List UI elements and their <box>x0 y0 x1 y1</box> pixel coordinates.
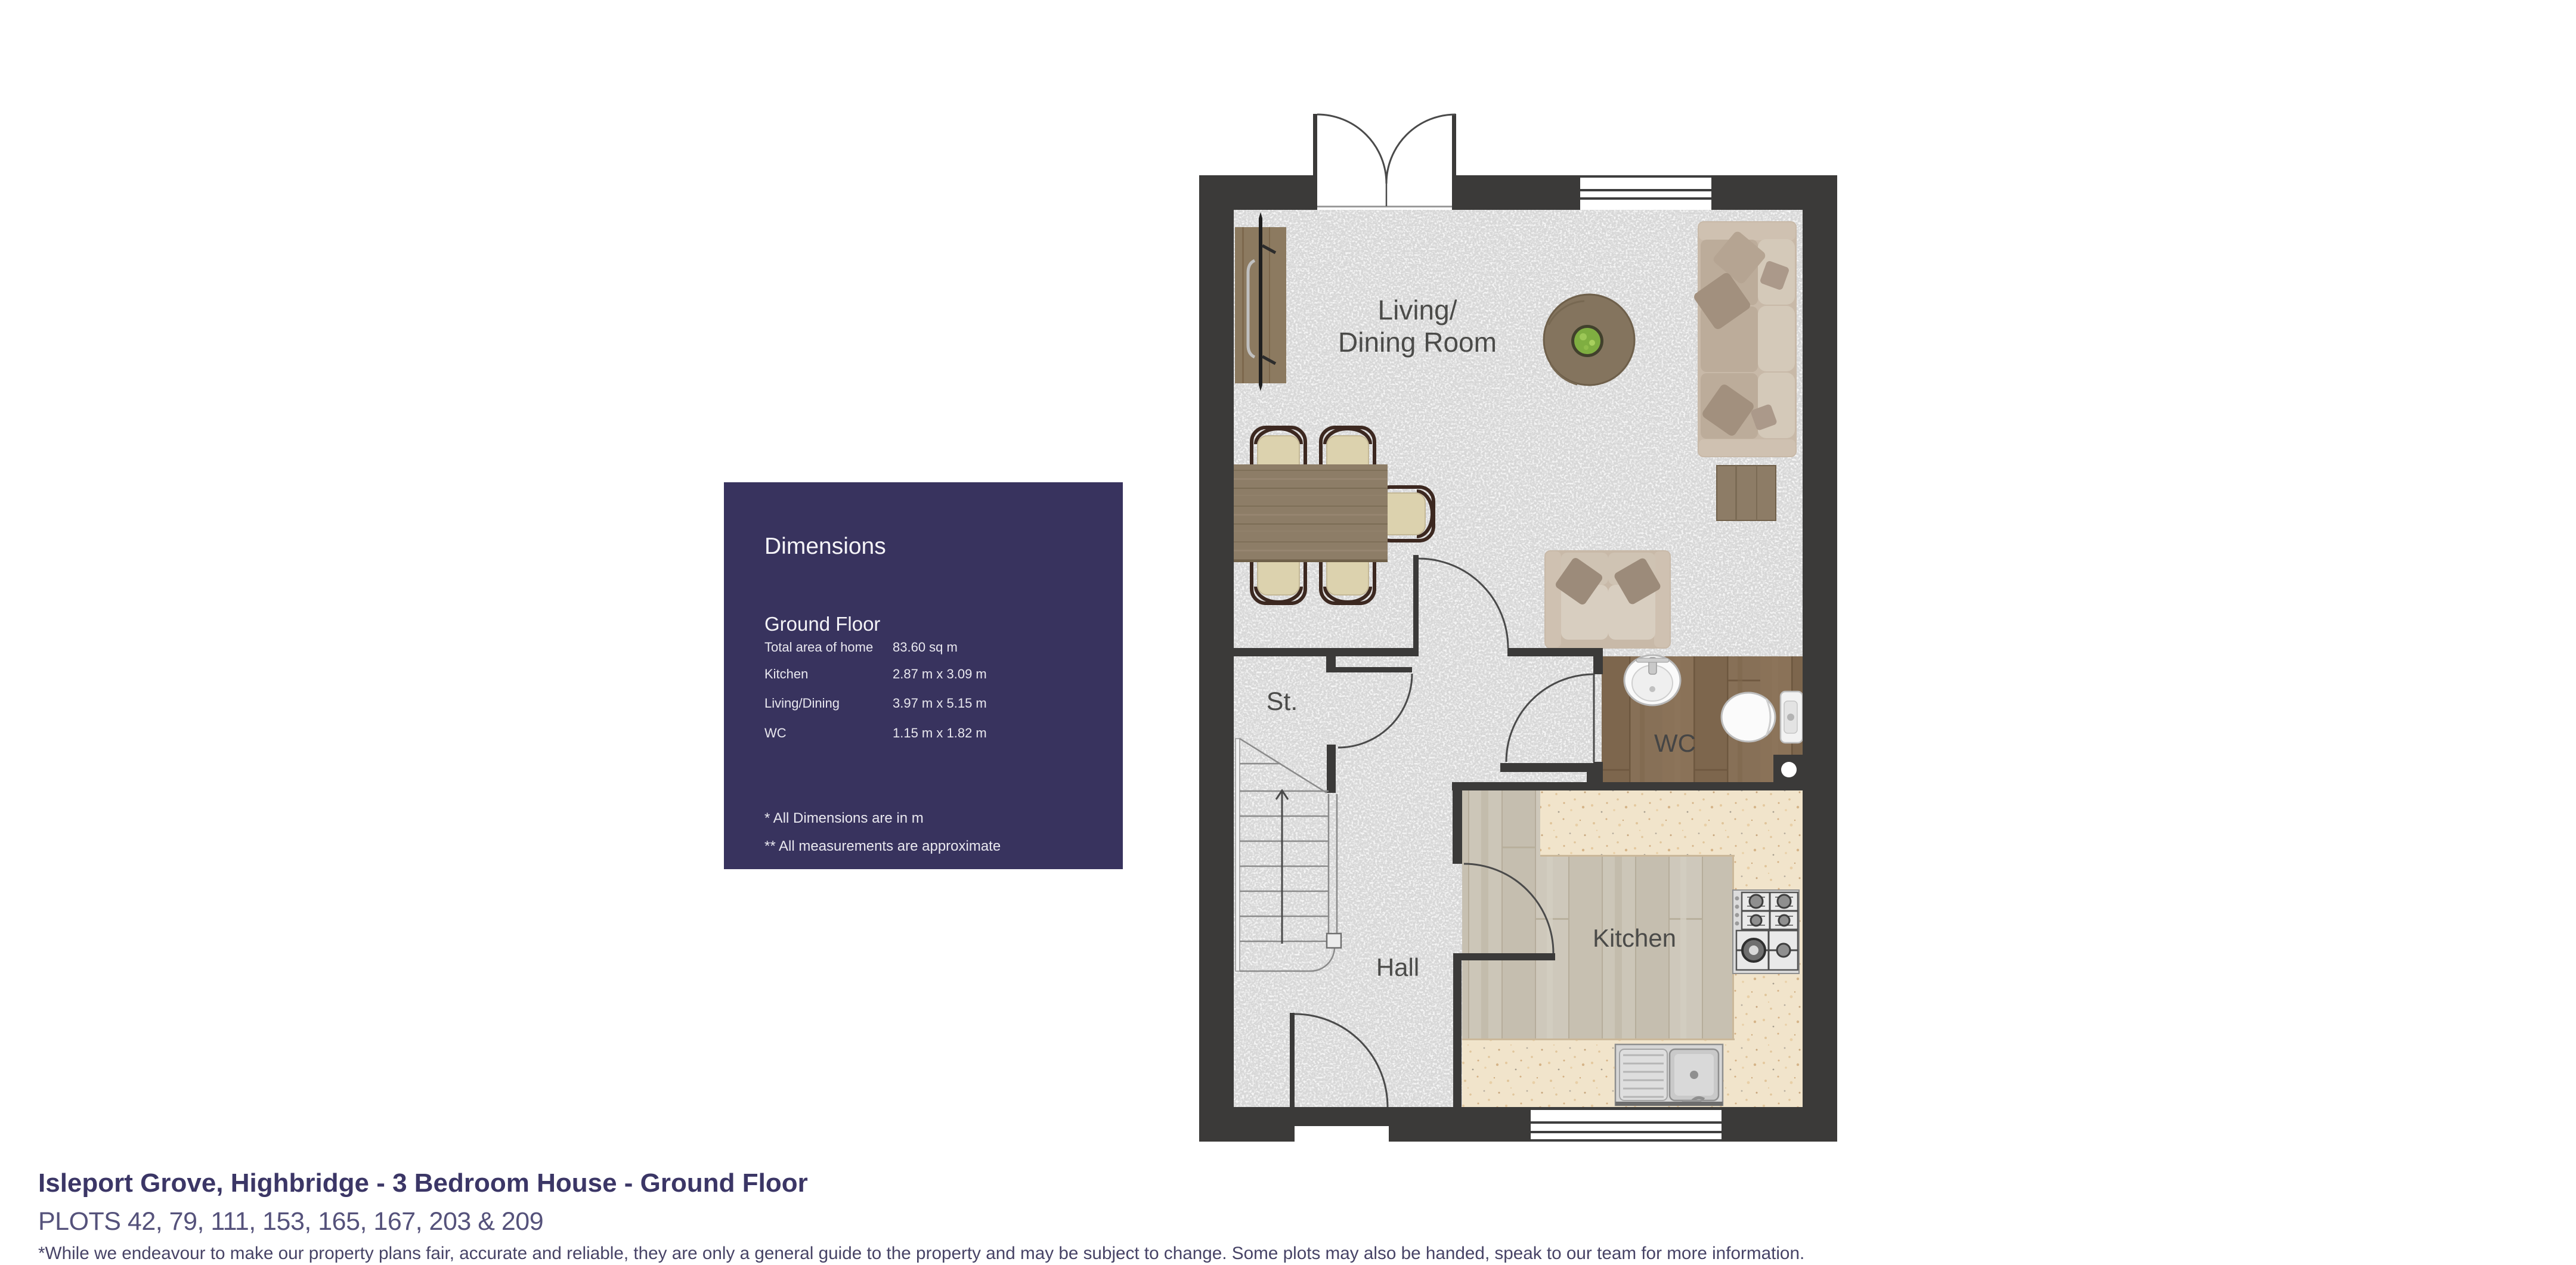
svg-text:Living/: Living/ <box>1378 294 1457 325</box>
svg-text:* All Dimensions are in m: * All Dimensions are in m <box>764 810 924 826</box>
svg-text:WC: WC <box>764 725 787 740</box>
svg-text:Kitchen: Kitchen <box>764 666 808 681</box>
svg-text:PLOTS 42, 79, 111, 153, 165, 1: PLOTS 42, 79, 111, 153, 165, 167, 203 & … <box>38 1207 543 1236</box>
svg-text:** All measurements are approx: ** All measurements are approximate <box>764 838 1001 854</box>
svg-text:Living/Dining: Living/Dining <box>764 696 840 711</box>
svg-text:Ground Floor: Ground Floor <box>764 613 880 635</box>
svg-text:Dining Room: Dining Room <box>1338 327 1497 358</box>
svg-text:83.60 sq m: 83.60 sq m <box>893 640 958 655</box>
svg-text:*While we endeavour to make ou: *While we endeavour to make our property… <box>38 1244 1804 1263</box>
svg-text:Hall: Hall <box>1376 953 1419 981</box>
svg-text:Total area of home: Total area of home <box>764 640 873 655</box>
svg-text:Kitchen: Kitchen <box>1593 924 1676 952</box>
svg-text:3.97 m x 5.15 m: 3.97 m x 5.15 m <box>893 696 987 711</box>
svg-text:1.15 m x 1.82 m: 1.15 m x 1.82 m <box>893 725 987 740</box>
svg-text:Isleport Grove, Highbridge - 3: Isleport Grove, Highbridge - 3 Bedroom H… <box>38 1168 808 1198</box>
svg-text:Dimensions: Dimensions <box>764 534 886 559</box>
svg-text:St.: St. <box>1267 687 1298 716</box>
svg-text:2.87 m x 3.09 m: 2.87 m x 3.09 m <box>893 666 987 681</box>
svg-text:WC: WC <box>1654 729 1696 757</box>
